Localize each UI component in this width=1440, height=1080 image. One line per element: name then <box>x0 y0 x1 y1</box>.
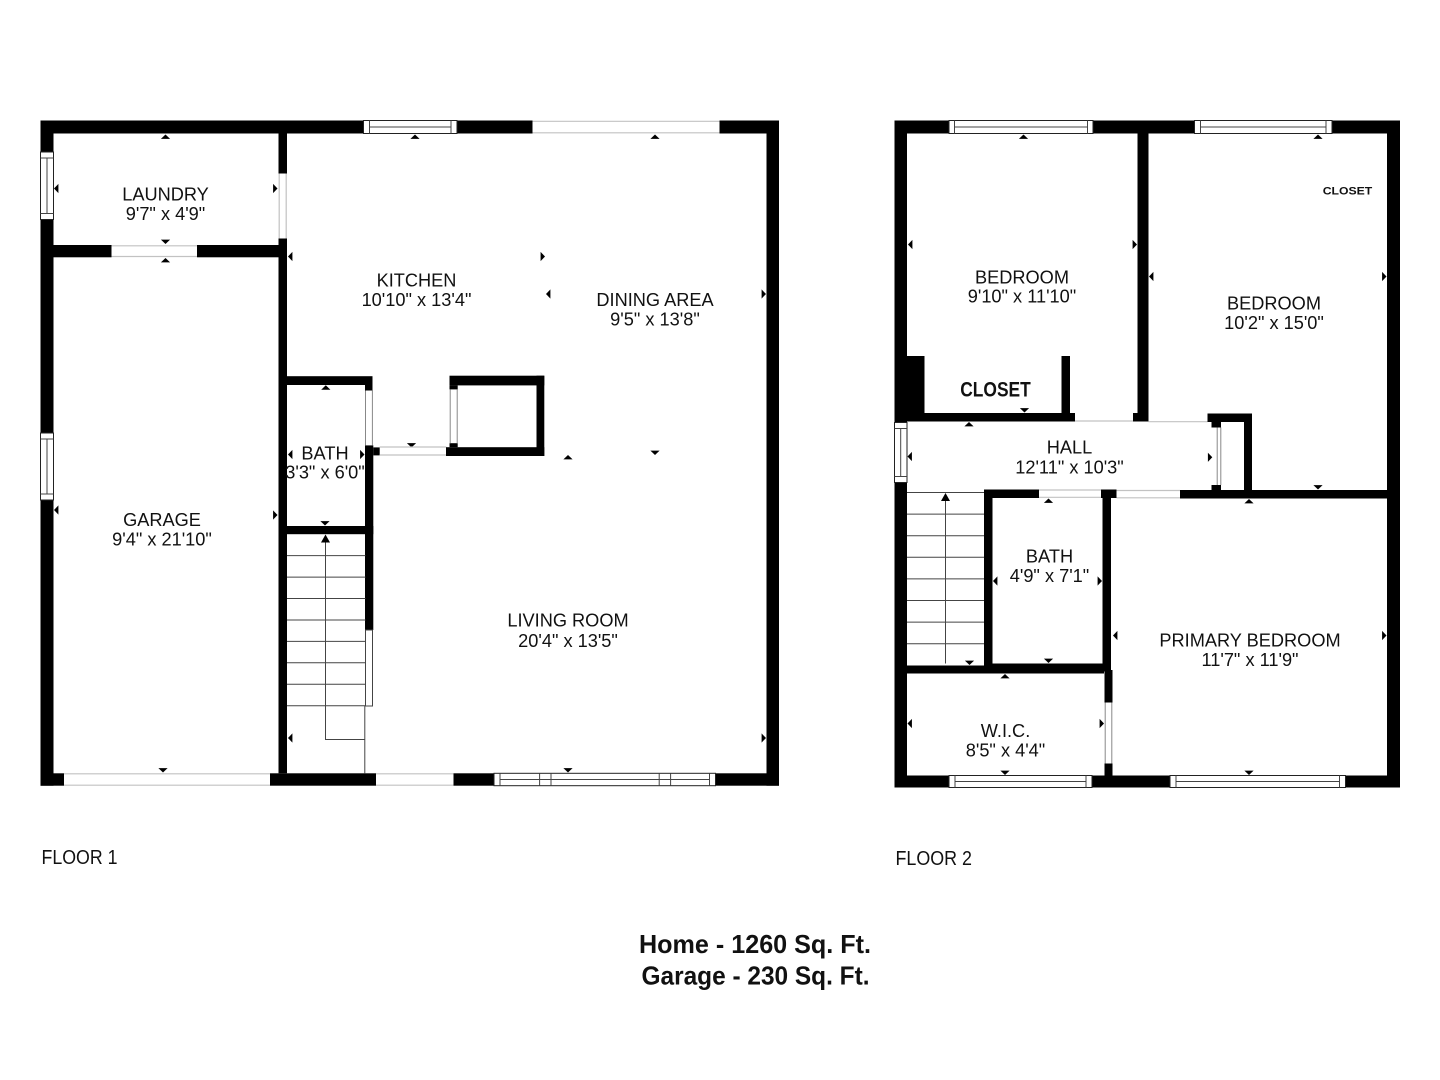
svg-text:9'10" x 11'10": 9'10" x 11'10" <box>968 286 1077 306</box>
svg-text:BEDROOM: BEDROOM <box>975 267 1069 287</box>
svg-text:KITCHEN: KITCHEN <box>377 270 457 290</box>
svg-text:HALL: HALL <box>1047 437 1093 457</box>
svg-text:9'7" x 4'9": 9'7" x 4'9" <box>126 204 206 224</box>
svg-text:LIVING ROOM: LIVING ROOM <box>507 610 628 630</box>
svg-text:BATH: BATH <box>301 443 348 463</box>
svg-text:CLOSET: CLOSET <box>1323 186 1373 198</box>
svg-text:3'3" x 6'0": 3'3" x 6'0" <box>285 462 365 482</box>
svg-text:Home - 1260 Sq. Ft.: Home - 1260 Sq. Ft. <box>639 929 871 959</box>
svg-text:Garage - 230 Sq. Ft.: Garage - 230 Sq. Ft. <box>642 961 870 991</box>
svg-text:BEDROOM: BEDROOM <box>1227 293 1321 313</box>
svg-text:FLOOR 2: FLOOR 2 <box>896 848 973 870</box>
svg-text:10'10" x 13'4": 10'10" x 13'4" <box>362 290 472 310</box>
svg-text:W.I.C.: W.I.C. <box>981 721 1031 741</box>
svg-text:20'4" x 13'5": 20'4" x 13'5" <box>518 631 618 651</box>
svg-text:12'11" x 10'3": 12'11" x 10'3" <box>1015 457 1124 477</box>
svg-text:LAUNDRY: LAUNDRY <box>122 184 209 204</box>
svg-text:8'5" x 4'4": 8'5" x 4'4" <box>966 740 1046 760</box>
svg-text:9'4" x 21'10": 9'4" x 21'10" <box>112 529 212 549</box>
svg-text:10'2" x 15'0": 10'2" x 15'0" <box>1224 313 1324 333</box>
svg-text:DINING AREA: DINING AREA <box>596 290 714 310</box>
svg-text:PRIMARY BEDROOM: PRIMARY BEDROOM <box>1159 630 1340 650</box>
svg-text:FLOOR 1: FLOOR 1 <box>42 847 118 869</box>
svg-text:11'7" x 11'9": 11'7" x 11'9" <box>1201 650 1298 670</box>
svg-text:GARAGE: GARAGE <box>123 510 201 530</box>
svg-text:BATH: BATH <box>1026 546 1073 566</box>
svg-text:4'9" x 7'1": 4'9" x 7'1" <box>1010 566 1090 586</box>
svg-text:CLOSET: CLOSET <box>960 377 1031 401</box>
svg-text:9'5" x 13'8": 9'5" x 13'8" <box>610 309 700 329</box>
